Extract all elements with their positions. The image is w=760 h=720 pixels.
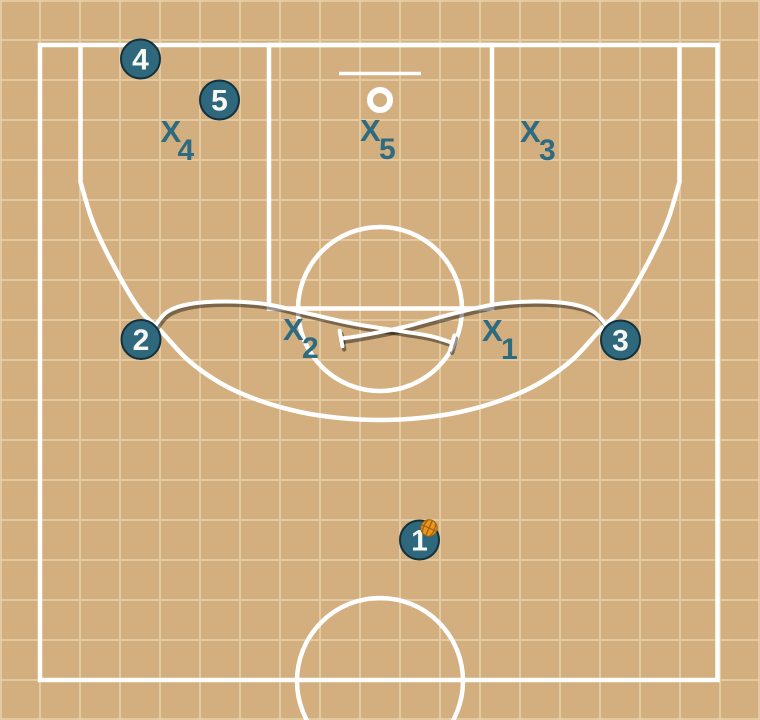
svg-text:3: 3 — [612, 325, 629, 358]
svg-text:5: 5 — [211, 85, 228, 118]
svg-text:1: 1 — [501, 333, 518, 366]
svg-text:5: 5 — [379, 133, 396, 166]
svg-text:2: 2 — [302, 332, 319, 365]
svg-text:X: X — [520, 114, 541, 149]
svg-text:3: 3 — [539, 134, 556, 167]
svg-text:X: X — [482, 313, 503, 348]
svg-text:X: X — [360, 113, 381, 148]
svg-text:2: 2 — [133, 324, 150, 357]
svg-text:4: 4 — [178, 134, 195, 167]
svg-text:X: X — [283, 312, 304, 347]
svg-text:4: 4 — [132, 44, 149, 77]
